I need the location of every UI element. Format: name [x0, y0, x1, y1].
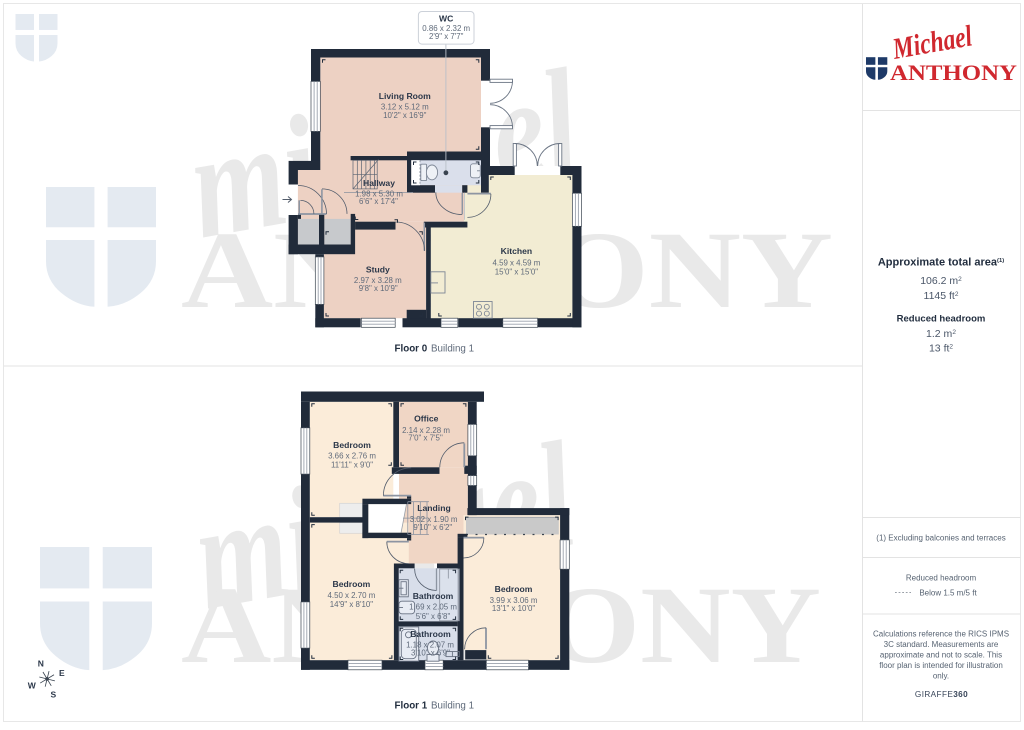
svg-text:Bathroom: Bathroom — [410, 629, 451, 639]
svg-text:Bedroom: Bedroom — [333, 440, 371, 450]
svg-text:4.50 x 2.70 m: 4.50 x 2.70 m — [327, 591, 375, 600]
svg-text:WC: WC — [439, 14, 453, 24]
svg-text:14'9" x 8'10": 14'9" x 8'10" — [330, 600, 373, 609]
svg-text:10'2" x 16'9": 10'2" x 16'9" — [383, 111, 426, 120]
svg-text:S: S — [50, 690, 56, 700]
svg-text:3.12 x 5.12 m: 3.12 x 5.12 m — [381, 102, 429, 111]
svg-text:Bedroom: Bedroom — [495, 584, 533, 594]
svg-text:Calculations reference the RIC: Calculations reference the RICS IPMS — [873, 630, 1009, 639]
svg-text:Floor 1: Floor 1 — [395, 701, 428, 712]
svg-text:Landing: Landing — [417, 503, 450, 513]
svg-text:2'9" x 7'7": 2'9" x 7'7" — [429, 32, 464, 41]
svg-text:7'0" x 7'5": 7'0" x 7'5" — [408, 434, 443, 443]
svg-text:3.66 x 2.76 m: 3.66 x 2.76 m — [328, 452, 376, 461]
svg-text:Living Room: Living Room — [379, 91, 431, 101]
svg-text:3C standard. Measurements are: 3C standard. Measurements are — [884, 640, 999, 649]
svg-text:ANTHONY: ANTHONY — [890, 60, 1017, 85]
svg-text:Study: Study — [366, 265, 390, 275]
svg-text:Building 1: Building 1 — [431, 701, 474, 712]
svg-text:only.: only. — [933, 672, 949, 681]
svg-text:13'1" x 10'0": 13'1" x 10'0" — [492, 604, 535, 613]
svg-text:Hallway: Hallway — [363, 178, 395, 188]
svg-text:Floor 0: Floor 0 — [395, 344, 428, 355]
svg-text:9'10" x 6'2": 9'10" x 6'2" — [413, 523, 452, 532]
svg-text:Bedroom: Bedroom — [333, 579, 371, 589]
svg-text:(1) Excluding balconies and te: (1) Excluding balconies and terraces — [876, 534, 1005, 543]
svg-text:approximate and not to scale.: approximate and not to scale. This — [880, 651, 1002, 660]
svg-text:9'8" x 10'9": 9'8" x 10'9" — [359, 284, 398, 293]
svg-text:floor plan is intended for ill: floor plan is intended for illustration — [879, 661, 1003, 670]
svg-text:Kitchen: Kitchen — [501, 246, 533, 256]
svg-text:Bathroom: Bathroom — [413, 591, 454, 601]
svg-text:Office: Office — [414, 414, 439, 424]
svg-text:W: W — [28, 681, 37, 691]
svg-text:GIRAFFE360: GIRAFFE360 — [915, 690, 968, 699]
svg-text:11'11" x 9'0": 11'11" x 9'0" — [331, 461, 373, 470]
svg-text:N: N — [38, 659, 44, 669]
svg-text:3'10" x 6'9": 3'10" x 6'9" — [411, 648, 450, 657]
svg-text:1.69 x 2.05 m: 1.69 x 2.05 m — [409, 603, 457, 612]
svg-text:15'0" x 15'0": 15'0" x 15'0" — [495, 267, 538, 276]
svg-text:E: E — [59, 668, 65, 678]
svg-text:5'6" x 6'8": 5'6" x 6'8" — [416, 612, 451, 621]
svg-text:Reduced headroom: Reduced headroom — [906, 574, 977, 583]
svg-text:106.2 m2: 106.2 m2 — [920, 275, 962, 287]
svg-text:Reduced headroom: Reduced headroom — [897, 314, 986, 325]
svg-text:4.59 x 4.59 m: 4.59 x 4.59 m — [492, 258, 540, 267]
svg-text:Below 1.5 m/5 ft: Below 1.5 m/5 ft — [919, 589, 977, 598]
svg-text:1.2 m2: 1.2 m2 — [926, 328, 956, 340]
svg-text:Approximate total area(1): Approximate total area(1) — [878, 257, 1004, 269]
svg-text:6'6" x 17'4": 6'6" x 17'4" — [359, 197, 398, 206]
svg-text:Building 1: Building 1 — [431, 344, 474, 355]
svg-text:1145 ft2: 1145 ft2 — [924, 290, 959, 302]
